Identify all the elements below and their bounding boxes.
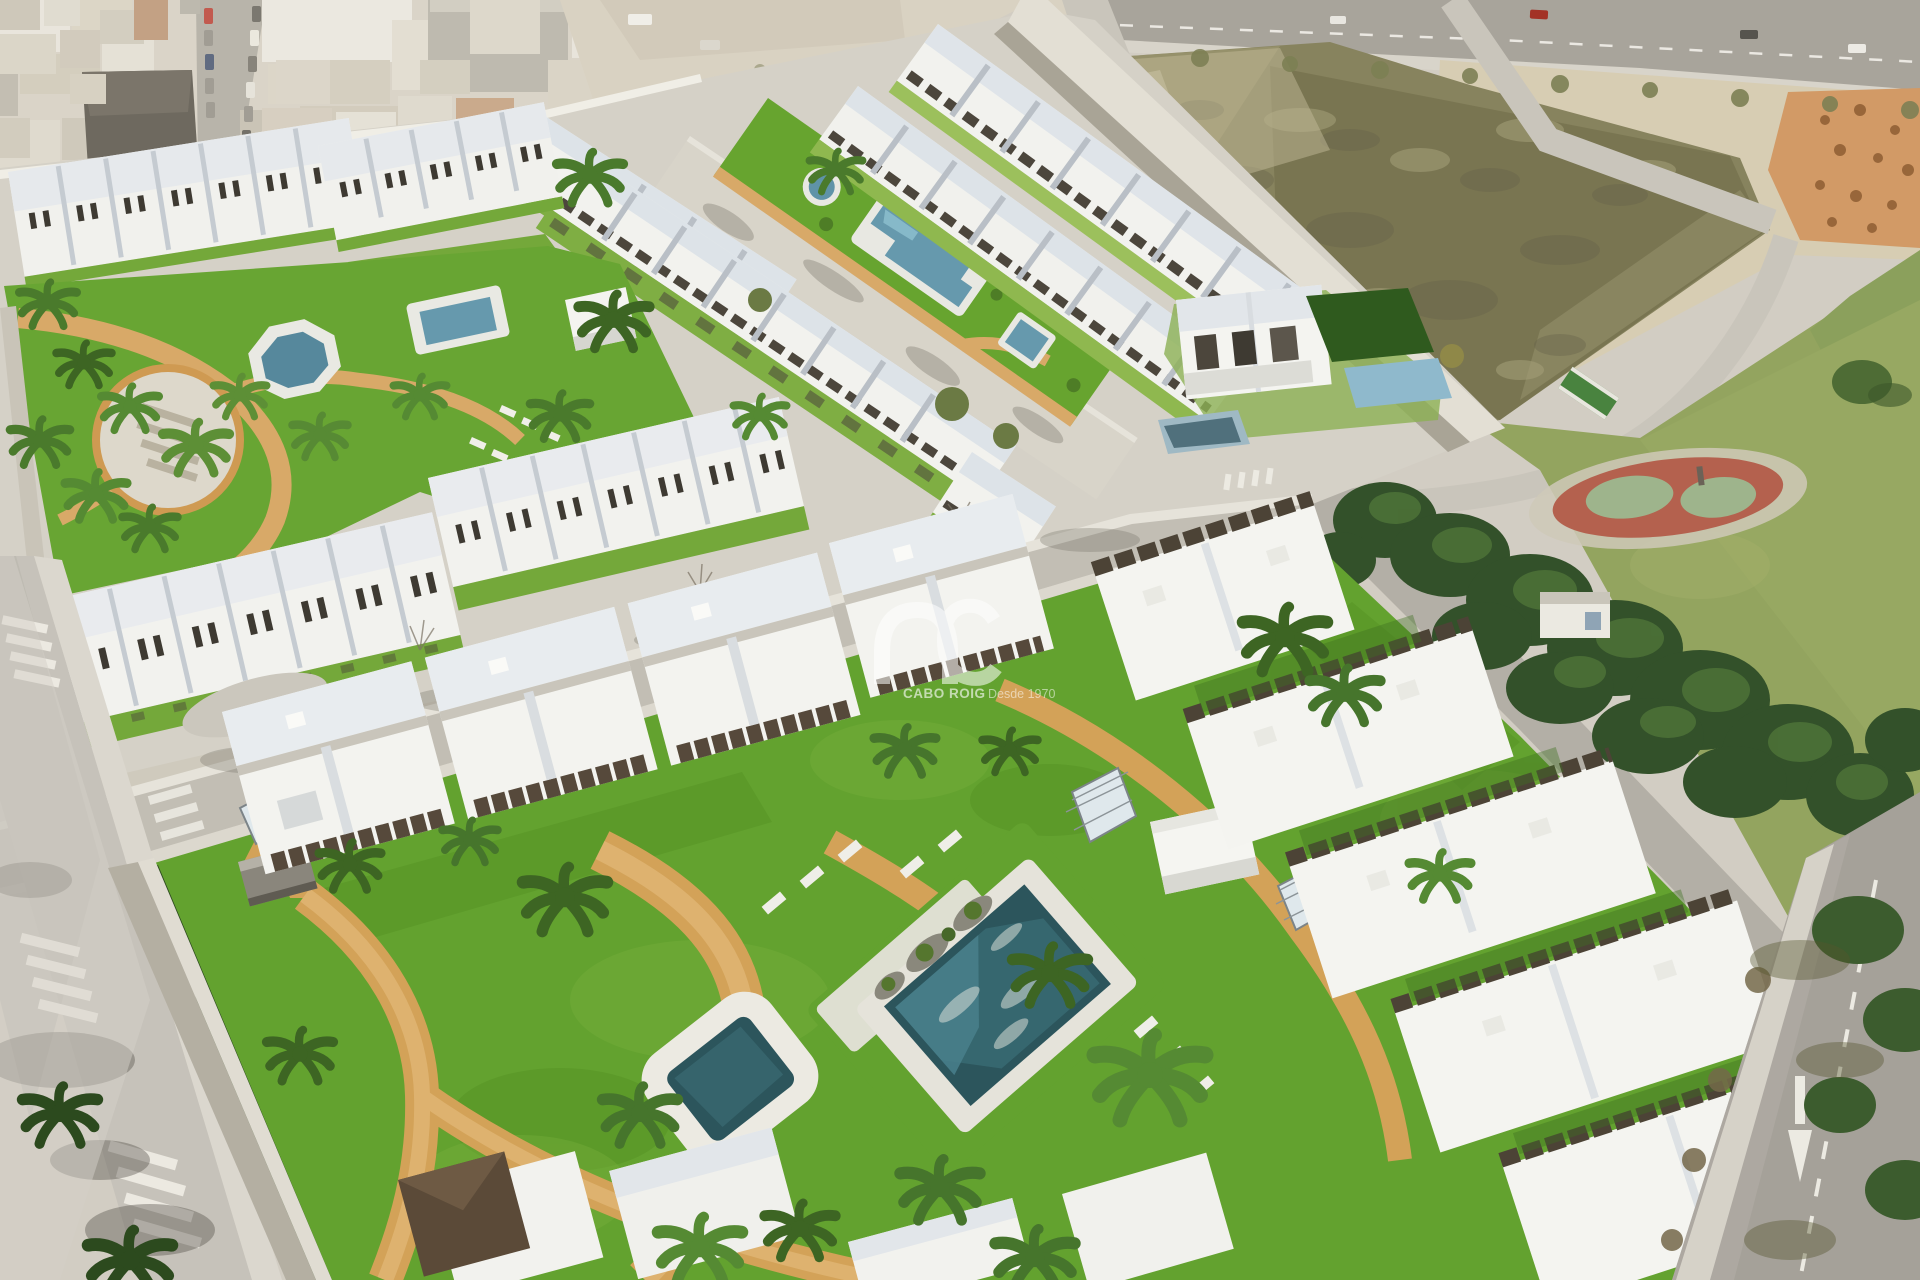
svg-text:CABO ROIG: CABO ROIG bbox=[903, 686, 986, 701]
svg-text:Desde 1970: Desde 1970 bbox=[988, 687, 1055, 701]
